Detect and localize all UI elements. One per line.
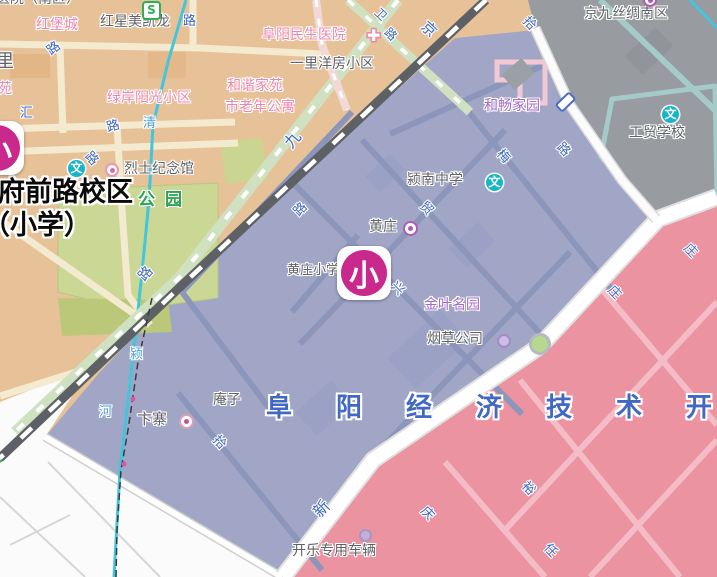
label-economic-zone: 阜阳经济技术开 bbox=[266, 394, 717, 424]
huangzhuang-dot[interactable] bbox=[403, 221, 418, 236]
roundabout-circle[interactable] bbox=[529, 333, 551, 355]
school-wen-icon-fuqianlu[interactable]: 文 bbox=[68, 160, 85, 177]
label-yuan-fragment: 苑 bbox=[0, 81, 12, 97]
label-river-ying: 颍 bbox=[130, 348, 143, 363]
label-lvanyangguang: 绿岸阳光小区 bbox=[107, 90, 191, 106]
school-wen-icon-yingnan[interactable]: 文 bbox=[486, 174, 503, 191]
label-anzi: 庵子 bbox=[213, 392, 241, 408]
hospital-cross-icon[interactable]: ✚ bbox=[367, 26, 380, 45]
school-wen-icon-gongmao[interactable]: 文 bbox=[662, 106, 679, 123]
label-jinyemingyuan: 金叶名园 bbox=[424, 297, 480, 313]
label-fuqianlu-campus: 府前路校区 bbox=[0, 177, 133, 208]
label-hongbaocheng: 红堡城 bbox=[36, 17, 78, 33]
yancao-dot[interactable] bbox=[497, 334, 511, 348]
bianzhai-dot[interactable] bbox=[179, 414, 194, 429]
fuqianlu-campus-marker[interactable]: 小 bbox=[0, 121, 24, 175]
label-road-hui: 汇 bbox=[20, 107, 33, 122]
label-fuyang-minsheng-hospital: 阜阳民生医院 bbox=[262, 27, 346, 43]
huangzhuang-primary-marker[interactable]: 小 bbox=[337, 246, 391, 300]
martyr-memorial-dot[interactable] bbox=[105, 163, 119, 177]
boundary-dot-1 bbox=[131, 397, 136, 402]
label-hospital-south-fragment: 医院（南区） bbox=[0, 0, 80, 7]
label-park: 公园 bbox=[138, 191, 192, 211]
label-river-he: 河 bbox=[99, 406, 112, 421]
kaile-dot[interactable] bbox=[359, 529, 372, 542]
label-shilaonian: 市老年公寓 bbox=[225, 99, 295, 115]
label-yancaogongsi: 烟草公司 bbox=[427, 331, 483, 347]
label-hechangjiayuan: 和畅家园 bbox=[484, 98, 540, 114]
label-jingjiusichou: 京九丝绸南区 bbox=[584, 6, 668, 22]
label-huangzhuang-primary-poi: 黄庄小学 bbox=[287, 264, 339, 279]
tan-block-1 bbox=[10, 54, 50, 78]
label-li-fragment: 里 bbox=[0, 52, 14, 73]
boundary-dot-2 bbox=[122, 462, 127, 467]
label-hexiejiayuan: 和谐家苑 bbox=[227, 78, 283, 94]
subway-s-icon[interactable]: S bbox=[142, 1, 161, 20]
label-gongmao-school: 工贸学校 bbox=[629, 125, 685, 141]
label-lieshijinianguan: 烈士纪念馆 bbox=[124, 161, 194, 177]
label-fuqianlu-primary: （小学） bbox=[0, 210, 91, 241]
label-huangzhuang: 黄庄 bbox=[369, 219, 397, 235]
label-kaile-vehicle: 开乐专用车辆 bbox=[292, 543, 376, 559]
label-river-qing: 清 bbox=[143, 117, 156, 132]
label-road-lu-1: 路 bbox=[183, 15, 196, 30]
label-bianzhai: 卞寨 bbox=[137, 411, 167, 428]
map-canvas[interactable]: 医院（南区）红堡城红星美凯龙路阜阳民生医院一里洋房小区里和谐家苑市老年公寓绿岸阳… bbox=[0, 0, 717, 577]
label-yingnan-middle-school: 颍南中学 bbox=[407, 172, 463, 188]
label-yiliyangfang: 一里洋房小区 bbox=[290, 56, 374, 72]
